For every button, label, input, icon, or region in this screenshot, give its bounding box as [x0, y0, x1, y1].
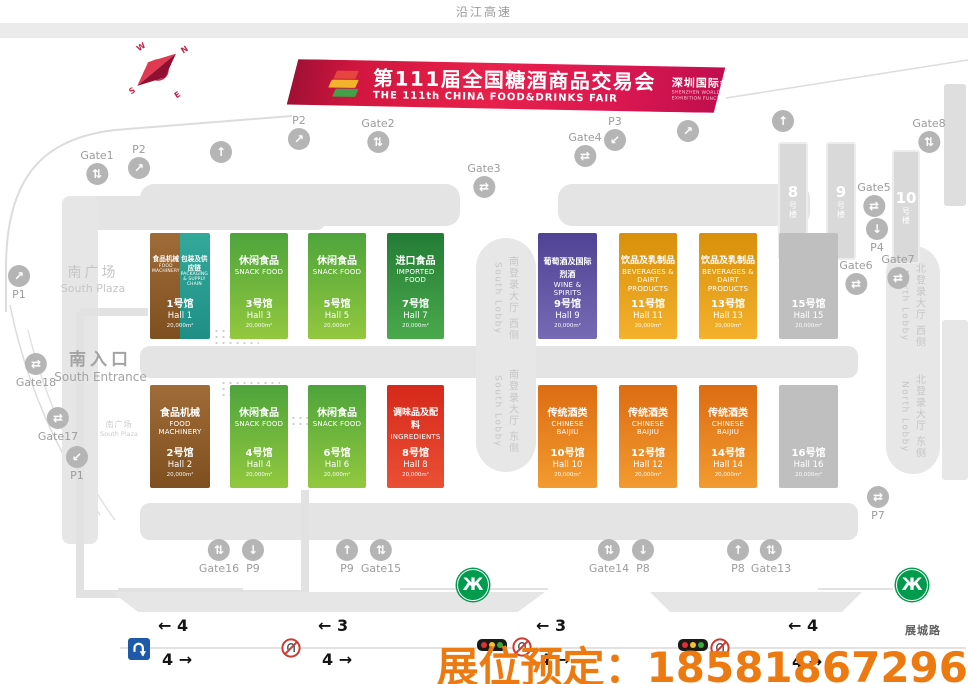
hall-9-area: 20,000m² — [540, 322, 595, 330]
bottom-road-label: 展城路 — [905, 622, 941, 638]
hall-14-cat-cn: 传统酒类 — [701, 407, 755, 420]
gate3-marker: Gate3⇄ — [467, 161, 500, 198]
building-8-suffix: 号楼 — [788, 201, 799, 219]
hall-2-area: 20,000m² — [152, 471, 208, 479]
compass-s: S — [127, 86, 137, 97]
gate14-label: Gate14 — [589, 561, 629, 576]
p8-marker: ↑P8 — [727, 539, 749, 576]
hall-9-no-cn: 9号馆 — [540, 298, 595, 311]
p7-marker: ⇄P7 — [867, 486, 889, 523]
building-10-number: 10 — [896, 190, 917, 207]
hall-1-no-en: Hall 1 — [152, 311, 208, 322]
hall-4: 休闲食品 SNACK FOOD 4号馆 Hall 4 20,000m² — [230, 385, 288, 488]
booking-phone-overlay: 展位预定：18581867296 — [437, 647, 968, 684]
gate4-label: Gate4 — [568, 130, 601, 145]
hall-16: 16号馆 Hall 16 20,000m² — [779, 385, 838, 488]
parking-arrow-icon: ↗ — [128, 157, 150, 179]
gate3-label: Gate3 — [467, 161, 500, 176]
hall-11-no-cn: 11号馆 — [621, 298, 675, 311]
gate7-marker: Gate7⇄ — [881, 252, 914, 289]
hall-5-no-cn: 5号馆 — [310, 298, 364, 311]
south-plaza-cn: 南广场 — [38, 265, 148, 282]
top-road-label: 沿江高速 — [0, 3, 968, 20]
building-9-number: 9 — [836, 184, 846, 201]
hall-3-area: 20,000m² — [232, 322, 286, 330]
hall-8-cat-cn: 调味品及配料 — [389, 407, 442, 433]
hall-6: 休闲食品 SNACK FOOD 6号馆 Hall 6 20,000m² — [308, 385, 366, 488]
p2-marker: P2↗ — [288, 113, 310, 150]
lane-count-eastbound: 4 → — [322, 650, 352, 669]
gate13-label: Gate13 — [751, 561, 791, 576]
hall-4-cat-cn: 休闲食品 — [232, 407, 286, 420]
hall-13-cat-cn: 饮品及乳制品 — [701, 255, 755, 268]
direction-marker: ↑ — [772, 110, 794, 132]
banner-title: 第111届全国糖酒商品交易会 THE 111th CHINA FOOD&DRIN… — [373, 67, 656, 106]
hall-5-area: 20,000m² — [310, 322, 364, 330]
gate-arrows-icon: ⇅ — [86, 163, 108, 185]
direction-marker: ↑ — [210, 141, 232, 163]
south-plaza-small-cn: 南广场 — [88, 420, 150, 430]
parking-arrow-icon: ↗ — [8, 265, 30, 287]
p9-marker: ↓P9 — [242, 539, 264, 576]
p8-label: P8 — [727, 561, 749, 576]
road-line — [118, 588, 243, 590]
lane-count-westbound: ← 4 — [788, 616, 818, 635]
hall-1: 食品机械 FOOD MACHINERY 包装及供应链 PACKAGING & S… — [150, 233, 210, 339]
north-lobby-east: North Lobby 北登录大厅 东侧 — [900, 374, 927, 459]
hall-14-cat-en: CHINESE BAIJIU — [701, 420, 755, 437]
building-9-suffix: 号楼 — [836, 201, 847, 219]
lane-count-westbound: ← 3 — [536, 616, 566, 635]
hall-4-cat-en: SNACK FOOD — [232, 420, 286, 428]
hall-1-cat-cn: 食品机械 — [152, 255, 180, 264]
gate-arrows-icon: ⇄ — [574, 145, 596, 167]
hall-9: 葡萄酒及国际烈酒 WINE & SPIRITS 9号馆 Hall 9 20,00… — [538, 233, 597, 339]
hall-8-no-en: Hall 8 — [389, 460, 442, 471]
hall-7-no-cn: 7号馆 — [389, 298, 442, 311]
parking-arrow-icon: ↓ — [866, 218, 888, 240]
parking-arrow-icon: ↙ — [604, 129, 626, 151]
hall-6-cat-cn: 休闲食品 — [310, 407, 364, 420]
hall-11: 饮品及乳制品 BEVERAGES & DAIRT PRODUCTS 11号馆 H… — [619, 233, 677, 339]
gate-arrows-icon: ⇄ — [473, 176, 495, 198]
lane-count-eastbound: 4 → — [162, 650, 192, 669]
hall-9-cat-cn: 葡萄酒及国际烈酒 — [540, 255, 595, 281]
direction-arrow-icon: ↑ — [210, 141, 232, 163]
gate15-label: Gate15 — [361, 561, 401, 576]
hall-10-cat-en: CHINESE BAIJIU — [540, 420, 595, 437]
hall-13: 饮品及乳制品 BEVERAGES & DAIRT PRODUCTS 13号馆 H… — [699, 233, 757, 339]
hall-16-no-en: Hall 16 — [781, 460, 836, 471]
north-lobby-east-cn: 北登录大厅 东侧 — [912, 374, 927, 459]
south-plaza-small-en: South Plaza — [88, 430, 150, 438]
hall-7: 进口食品 IMPORTED FOOD 7号馆 Hall 7 20,000m² — [387, 233, 444, 339]
gate13-marker: ⇅Gate13 — [751, 539, 791, 576]
hall-5-cat-cn: 休闲食品 — [310, 255, 364, 268]
banner-title-cn: 第111届全国糖酒商品交易会 — [373, 67, 656, 94]
p1-label: P1 — [66, 468, 88, 483]
hall-12-cat-en: CHINESE BAIJIU — [621, 420, 675, 437]
hall-9-cat-en: WINE & SPIRITS — [540, 281, 595, 298]
gate-arrows-icon: ⇅ — [370, 539, 392, 561]
hall-16-no-cn: 16号馆 — [781, 447, 836, 460]
gate-arrows-icon: ⇅ — [598, 539, 620, 561]
p8-marker: ↓P8 — [632, 539, 654, 576]
hall-6-no-en: Hall 6 — [310, 460, 364, 471]
south-lobby-west-cn: 南登录大厅 西侧 — [505, 256, 520, 341]
p2-label: P2 — [288, 113, 310, 128]
shenzhen-metro-icon: Ж — [896, 569, 928, 601]
fair-banner: 第111届全国糖酒商品交易会 THE 111th CHINA FOOD&DRIN… — [287, 59, 726, 113]
building-8-number: 8 — [788, 184, 798, 201]
hall-10-no-en: Hall 10 — [540, 460, 595, 471]
hall-10: 传统酒类 CHINESE BAIJIU 10号馆 Hall 10 20,000m… — [538, 385, 597, 488]
hall-10-area: 20,000m² — [540, 471, 595, 479]
hall-11-cat-en: BEVERAGES & DAIRT PRODUCTS — [621, 268, 675, 293]
hall-6-no-cn: 6号馆 — [310, 447, 364, 460]
direction-arrow-icon: ↗ — [677, 120, 699, 142]
p1-marker: ↙P1 — [66, 446, 88, 483]
p7-label: P7 — [867, 508, 889, 523]
road-line — [818, 588, 893, 590]
south-plaza-label: 南广场 South Plaza — [38, 265, 148, 296]
p3-label: P3 — [604, 114, 626, 129]
compass-w: W — [135, 41, 147, 53]
hall-6-cat-en: SNACK FOOD — [310, 420, 364, 428]
hall-1-cat-en: FOOD MACHINERY — [152, 264, 180, 274]
hall-1-number: 1号馆 Hall 1 20,000m² — [152, 298, 208, 330]
gate-arrows-icon: ⇅ — [760, 539, 782, 561]
hall-12: 传统酒类 CHINESE BAIJIU 12号馆 Hall 12 20,000m… — [619, 385, 677, 488]
south-lobby-east-en: South Lobby — [493, 375, 503, 448]
hall-15: 15号馆 Hall 15 20,000m² — [779, 233, 838, 339]
hall-1-cat2-cn: 包装及供应链 — [181, 255, 208, 272]
p4-marker: ↓P4 — [866, 218, 888, 255]
hall-11-cat-cn: 饮品及乳制品 — [621, 255, 675, 268]
hall-1-no-cn: 1号馆 — [152, 298, 208, 311]
hall-8-area: 20,000m² — [389, 471, 442, 479]
hall-1-category-left: 食品机械 FOOD MACHINERY — [152, 255, 180, 287]
p1-label: P1 — [8, 287, 30, 302]
hall-3-cat-en: SNACK FOOD — [232, 268, 286, 276]
gate14-marker: ⇅Gate14 — [589, 539, 629, 576]
hall-14-no-cn: 14号馆 — [701, 447, 755, 460]
venue-map: 沿江高速 第111届全国糖酒商品交易会 THE 111th CHINA FOOD… — [0, 0, 968, 684]
south-lobby-west-en: South Lobby — [493, 262, 503, 335]
south-plaza-small-label: 南广场 South Plaza — [88, 420, 150, 438]
hall-2: 食品机械 FOOD MACHINERY 2号馆 Hall 2 20,000m² — [150, 385, 210, 488]
hall-8-no-cn: 8号馆 — [389, 447, 442, 460]
hall-8: 调味品及配料 INGREDIENTS 8号馆 Hall 8 20,000m² — [387, 385, 444, 488]
hall-12-area: 20,000m² — [621, 471, 675, 479]
hall-4-area: 20,000m² — [232, 471, 286, 479]
hall-13-no-cn: 13号馆 — [701, 298, 755, 311]
gate6-marker: Gate6⇄ — [839, 258, 872, 295]
gate1-label: Gate1 — [80, 148, 113, 163]
shenzhen-metro-icon: Ж — [457, 569, 489, 601]
compass-icon: W N S E — [116, 28, 200, 112]
gate16-label: Gate16 — [199, 561, 239, 576]
gate-arrows-icon: ⇄ — [887, 267, 909, 289]
hall-13-area: 20,000m² — [701, 322, 755, 330]
gate-arrows-icon: ⇅ — [918, 131, 940, 153]
p8-label: P8 — [632, 561, 654, 576]
hall-2-cat-en: FOOD MACHINERY — [152, 420, 208, 437]
gate5-label: Gate5 — [857, 180, 890, 195]
hall-4-no-cn: 4号馆 — [232, 447, 286, 460]
hall-2-no-en: Hall 2 — [152, 460, 208, 471]
hall-4-no-en: Hall 4 — [232, 460, 286, 471]
gate15-marker: ⇅Gate15 — [361, 539, 401, 576]
hall-2-cat-cn: 食品机械 — [152, 407, 208, 420]
parking-arrow-icon: ↑ — [727, 539, 749, 561]
gate18-label: Gate18 — [16, 375, 56, 390]
direction-marker: ↗ — [677, 120, 699, 142]
hall-1-area: 20,000m² — [152, 322, 208, 330]
hall-10-no-cn: 10号馆 — [540, 447, 595, 460]
gate-arrows-icon: ⇄ — [863, 195, 885, 217]
building-10: 10 号楼 — [892, 150, 920, 264]
gate8-marker: Gate8⇅ — [912, 116, 945, 153]
parking-arrow-icon: ↓ — [242, 539, 264, 561]
gate16-marker: ⇅Gate16 — [199, 539, 239, 576]
hall-12-cat-cn: 传统酒类 — [621, 407, 675, 420]
p9-label: P9 — [336, 561, 358, 576]
hall-9-no-en: Hall 9 — [540, 311, 595, 322]
hall-3-cat-cn: 休闲食品 — [232, 255, 286, 268]
hall-13-no-en: Hall 13 — [701, 311, 755, 322]
compass-e: E — [173, 90, 182, 101]
south-lobby-east-cn: 南登录大厅 东侧 — [505, 369, 520, 454]
hall-14: 传统酒类 CHINESE BAIJIU 14号馆 Hall 14 20,000m… — [699, 385, 757, 488]
hall-7-no-en: Hall 7 — [389, 311, 442, 322]
compass-n: N — [179, 44, 190, 55]
gate8-label: Gate8 — [912, 116, 945, 131]
hall-16-area: 20,000m² — [781, 471, 836, 479]
hall-14-no-en: Hall 14 — [701, 460, 755, 471]
south-lobby: South Lobby 南登录大厅 西侧 South Lobby 南登录大厅 东… — [476, 242, 536, 468]
gate2-label: Gate2 — [361, 116, 394, 131]
gate1-marker: Gate1⇅ — [80, 148, 113, 185]
p1-marker: ↗P1 — [8, 265, 30, 302]
p2-marker: P2↗ — [128, 142, 150, 179]
hall-5-no-en: Hall 5 — [310, 311, 364, 322]
fair-logo-icon — [327, 69, 361, 99]
hall-15-area: 20,000m² — [781, 322, 836, 330]
p3-marker: P3↙ — [604, 114, 626, 151]
p9-label: P9 — [242, 561, 264, 576]
gate-arrows-icon: ⇄ — [845, 273, 867, 295]
hall-15-no-cn: 15号馆 — [781, 298, 836, 311]
gate5-marker: Gate5⇄ — [857, 180, 890, 217]
hall-7-cat-en: IMPORTED FOOD — [389, 268, 442, 285]
hall-3: 休闲食品 SNACK FOOD 3号馆 Hall 3 20,000m² — [230, 233, 288, 339]
lane-count-westbound: ← 4 — [158, 616, 188, 635]
hall-5-cat-en: SNACK FOOD — [310, 268, 364, 276]
p9-marker: ↑P9 — [336, 539, 358, 576]
hall-14-area: 20,000m² — [701, 471, 755, 479]
hall-7-cat-cn: 进口食品 — [389, 255, 442, 268]
p2-label: P2 — [128, 142, 150, 157]
gate18-marker: ⇄Gate18 — [16, 353, 56, 390]
hall-3-no-en: Hall 3 — [232, 311, 286, 322]
uturn-allowed-sign-icon — [128, 638, 150, 660]
parking-arrow-icon: ↑ — [336, 539, 358, 561]
north-lobby-east-en: North Lobby — [900, 381, 910, 453]
hall-12-no-en: Hall 12 — [621, 460, 675, 471]
hall-11-area: 20,000m² — [621, 322, 675, 330]
lane-count-westbound: ← 3 — [318, 616, 348, 635]
gate-arrows-icon: ⇅ — [208, 539, 230, 561]
hall-1-cat2-en: PACKAGING & SUPPLY CHAIN — [181, 272, 208, 287]
hall-13-cat-en: BEVERAGES & DAIRT PRODUCTS — [701, 268, 755, 293]
parking-arrow-icon: ⇄ — [867, 486, 889, 508]
hall-11-no-en: Hall 11 — [621, 311, 675, 322]
parking-arrow-icon: ↙ — [66, 446, 88, 468]
building-10-suffix: 号楼 — [901, 207, 912, 225]
gate17-marker: ⇄Gate17 — [38, 407, 78, 444]
hall-12-no-cn: 12号馆 — [621, 447, 675, 460]
hall-2-no-cn: 2号馆 — [152, 447, 208, 460]
south-lobby-west: South Lobby 南登录大厅 西侧 — [493, 256, 520, 341]
south-lobby-east: South Lobby 南登录大厅 东侧 — [493, 369, 520, 454]
hall-6-area: 20,000m² — [310, 471, 364, 479]
hall-5: 休闲食品 SNACK FOOD 5号馆 Hall 5 20,000m² — [308, 233, 366, 339]
gate-arrows-icon: ⇄ — [25, 353, 47, 375]
hall-1-category-right: 包装及供应链 PACKAGING & SUPPLY CHAIN — [181, 255, 208, 287]
hall-8-cat-en: INGREDIENTS — [389, 433, 442, 441]
gate17-label: Gate17 — [38, 429, 78, 444]
parking-arrow-icon: ↗ — [288, 128, 310, 150]
gate7-label: Gate7 — [881, 252, 914, 267]
south-plaza-en: South Plaza — [38, 282, 148, 296]
hall-10-cat-cn: 传统酒类 — [540, 407, 595, 420]
gate4-marker: Gate4⇄ — [568, 130, 601, 167]
direction-arrow-icon: ↑ — [772, 110, 794, 132]
hall-3-no-cn: 3号馆 — [232, 298, 286, 311]
hall-7-area: 20,000m² — [389, 322, 442, 330]
hall-15-no-en: Hall 15 — [781, 311, 836, 322]
parking-arrow-icon: ↓ — [632, 539, 654, 561]
gate6-label: Gate6 — [839, 258, 872, 273]
gate2-marker: Gate2⇅ — [361, 116, 394, 153]
no-uturn-sign-icon — [281, 638, 301, 662]
gate-arrows-icon: ⇅ — [367, 131, 389, 153]
gate-arrows-icon: ⇄ — [47, 407, 69, 429]
